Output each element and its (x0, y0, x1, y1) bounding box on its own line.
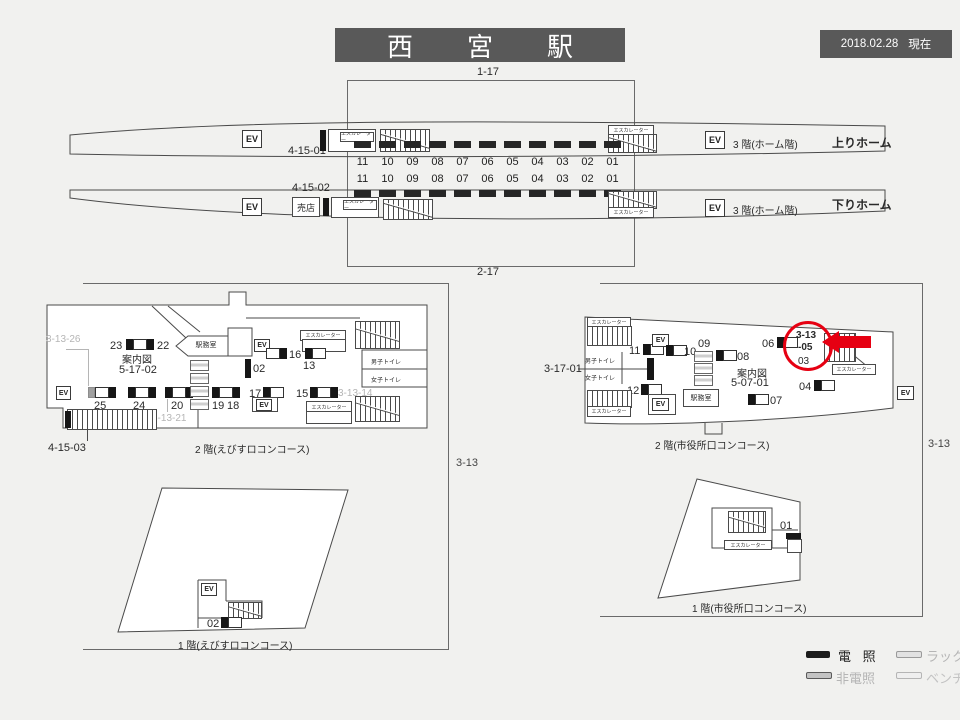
ev-icon: EV (242, 198, 262, 216)
escalator-label: エスカレーター (608, 207, 654, 218)
stairs-icon (67, 409, 157, 430)
pos-09-label: 09 (698, 338, 710, 350)
ev-icon: EV (256, 399, 272, 411)
down-platform-ad-numbers: 1110090807060504030201 (350, 173, 625, 185)
legend-rack-icon (896, 651, 922, 658)
platform-ad-board (529, 141, 546, 148)
platform-ad-board (504, 190, 521, 197)
womens-toilet-label: 女子トイレ (371, 375, 401, 384)
ad-board-15 (310, 387, 338, 398)
platform-ad-number: 01 (600, 173, 625, 185)
ad-board-19-18 (212, 387, 240, 398)
platform-ad-board (379, 190, 396, 197)
rack (694, 351, 713, 362)
leader-line (87, 429, 88, 441)
kiosk-box: 売店 (292, 197, 320, 217)
platform-ad-number: 07 (450, 156, 475, 168)
up-platform-ad-boards (350, 141, 625, 148)
stairs-icon (383, 199, 433, 220)
platform-ad-board (479, 141, 496, 148)
stairs-icon (728, 511, 766, 533)
rack (190, 360, 209, 371)
highlight-arrow-icon (822, 331, 839, 353)
pos-19-label: 19 (212, 400, 224, 412)
pos-18-label: 18 (227, 400, 239, 412)
platform-ad-number: 04 (525, 173, 550, 185)
ev-icon: EV (56, 386, 71, 400)
platform-ad-number: 11 (350, 173, 375, 185)
rack (190, 373, 209, 384)
womens-toilet-label: 女子トイレ (585, 373, 615, 382)
rack (190, 399, 209, 410)
platform-ad-number: 04 (525, 156, 550, 168)
down-platform-name: 下りホーム (832, 196, 892, 213)
platform-ad-number: 02 (575, 156, 600, 168)
ad-board-01-box (787, 539, 802, 553)
zone-bottom-label: 2-17 (477, 266, 499, 278)
escalator-label: エスカレーター (724, 540, 772, 550)
zone-top-label: 1-17 (477, 66, 499, 78)
platform-ad-board (529, 190, 546, 197)
legend-lit-icon (806, 651, 830, 658)
ad-board-3-17-01 (647, 358, 654, 380)
pos-01-label: 01 (780, 520, 792, 532)
code-3-13-21: 3-13-21 (152, 413, 186, 424)
platform-ad-number: 06 (475, 156, 500, 168)
pos-23-label: 23 (110, 340, 122, 352)
rack (694, 363, 713, 374)
ad-board-4-15-03 (65, 411, 71, 428)
ad-board-02 (245, 359, 251, 378)
station-office-label: 駅務室 (185, 340, 227, 350)
ebisu-1f-outline (100, 480, 460, 640)
platform-ad-board (429, 190, 446, 197)
leader-line (167, 399, 168, 412)
pos-13-label: 13 (303, 360, 315, 372)
platform-ad-board (404, 190, 421, 197)
stairs-icon (355, 321, 400, 349)
page-title: 西 宮 駅 (335, 28, 625, 62)
legend-bench-label: ベンチ (926, 668, 960, 687)
date-status: 現在 (908, 36, 931, 52)
code-3-13-26: 3-13-26 (46, 334, 80, 345)
platform-ad-board (554, 141, 571, 148)
up-platform-name: 上りホーム (832, 134, 892, 151)
highlight-code-line2: -05 (798, 342, 812, 353)
platform-ad-board (354, 190, 371, 197)
ad-board-08 (716, 350, 737, 361)
platform-ad-board (354, 141, 371, 148)
platform-ad-number: 03 (550, 173, 575, 185)
ad-board-13 (305, 348, 326, 359)
pos-15-label: 15 (296, 388, 308, 400)
platform-ad-number: 11 (350, 156, 375, 168)
pos-11-label: 11 (629, 345, 640, 357)
platform-ad-number: 09 (400, 173, 425, 185)
ad-board-04 (814, 380, 835, 391)
legend-lit-label: 電 照 (838, 646, 880, 665)
escalator-label: エスカレーター (832, 364, 876, 375)
platform-ad-board (604, 141, 621, 148)
pos-22-label: 22 (157, 340, 169, 352)
pos-06-label: 06 (762, 338, 774, 350)
ad-board-07 (748, 394, 769, 405)
code-4-15-03: 4-15-03 (48, 442, 86, 454)
pos-08-label: 08 (737, 351, 749, 363)
pos-04-label: 04 (799, 381, 811, 393)
down-platform-ad-boards (350, 190, 625, 197)
ev-icon: EV (242, 130, 262, 148)
ad-board-4-15-01 (320, 130, 326, 151)
up-platform-floor: 3 階(ホーム階) (733, 136, 798, 151)
ad-board-25 (88, 387, 116, 398)
stairs-icon (355, 396, 400, 422)
highlight-arrow-shaft (838, 336, 871, 348)
legend-rack-label: ラック (926, 646, 960, 665)
platform-ad-board (379, 141, 396, 148)
rack (694, 375, 713, 386)
mens-toilet-label: 男子トイレ (585, 356, 615, 365)
platform-ad-number: 01 (600, 156, 625, 168)
platform-ad-board (554, 190, 571, 197)
shiyakusho-1f-caption: 1 階(市役所口コンコース) (692, 600, 807, 615)
escalator-box (306, 411, 352, 424)
platform-ad-board (579, 190, 596, 197)
legend-nonlit-icon (806, 672, 832, 679)
platform-ad-number: 08 (425, 173, 450, 185)
legend-bench-icon (896, 672, 922, 679)
platform-ad-board (504, 141, 521, 148)
down-platform-code: 4-15-02 (292, 182, 330, 194)
highlight-code-line1: 3-13 (796, 330, 816, 341)
stairs-icon (587, 326, 632, 346)
ev-icon: EV (705, 199, 725, 217)
ebisu-2f-caption: 2 階(えびすロコンコース) (195, 441, 310, 456)
platform-ad-number: 07 (450, 173, 475, 185)
platform-ad-board (579, 141, 596, 148)
info-board-code: 5-17-02 (119, 364, 157, 376)
ad-board-4-15-02 (323, 198, 329, 216)
ad-board-24 (128, 387, 156, 398)
ad-board-16 (266, 348, 287, 359)
pos-07-label: 07 (770, 395, 782, 407)
code-3-13-14: 3-13-14 (338, 388, 372, 399)
shiyakusho-1f-outline (640, 470, 930, 610)
platform-ad-board (404, 141, 421, 148)
platform-ad-board (429, 141, 446, 148)
leader-line (88, 349, 89, 386)
pos-20-label: 20 (171, 400, 183, 412)
ev-icon: EV (705, 131, 725, 149)
pos-02-label: 02 (253, 363, 265, 375)
platform-ad-board (454, 141, 471, 148)
leader-line (66, 349, 88, 350)
platform-ad-number: 03 (550, 156, 575, 168)
mens-toilet-label: 男子トイレ (371, 357, 401, 366)
platform-ad-number: 10 (375, 156, 400, 168)
platform-ad-number: 02 (575, 173, 600, 185)
escalator-label: エスカレーター (343, 200, 377, 210)
platform-ad-board (479, 190, 496, 197)
station-ad-location-map: 西 宮 駅 2018.02.28 現在 1-17 2-17 EV 4-15-01… (0, 0, 960, 720)
platform-ad-number: 05 (500, 173, 525, 185)
legend-nonlit-label: 非電照 (836, 668, 875, 687)
up-platform-ad-numbers: 1110090807060504030201 (350, 156, 625, 168)
date-box: 2018.02.28 現在 (820, 30, 952, 58)
ad-board-02-1f (221, 617, 242, 628)
ev-icon: EV (201, 583, 217, 596)
ebisu-1f-caption: 1 階(えびすロコンコース) (178, 637, 293, 652)
rack (190, 386, 209, 397)
platform-ad-number: 08 (425, 156, 450, 168)
ad-board-23-22 (126, 339, 154, 350)
shiyakusho-2f-caption: 2 階(市役所口コンコース) (655, 437, 770, 452)
station-office-box: 駅務室 (683, 389, 719, 407)
code-3-17-01: 3-17-01 (544, 363, 582, 375)
shiyakusho-zone-label: 3-13 (928, 438, 950, 450)
ev-icon: EV (652, 398, 669, 411)
escalator-label: エスカレーター (587, 406, 631, 417)
date-value: 2018.02.28 (841, 38, 899, 50)
pos-16-label: 16 (289, 349, 301, 361)
pos-02-1f-label: 02 (207, 618, 219, 630)
ebisu-zone-label: 3-13 (456, 457, 478, 469)
platform-ad-board (454, 190, 471, 197)
platform-ad-number: 05 (500, 156, 525, 168)
down-platform-floor: 3 階(ホーム階) (733, 202, 798, 217)
ev-icon: EV (897, 386, 914, 400)
platform-ad-number: 06 (475, 173, 500, 185)
ad-board-20 (165, 387, 193, 398)
info-board-code: 5-07-01 (731, 377, 769, 389)
platform-ad-number: 10 (375, 173, 400, 185)
platform-ad-number: 09 (400, 156, 425, 168)
